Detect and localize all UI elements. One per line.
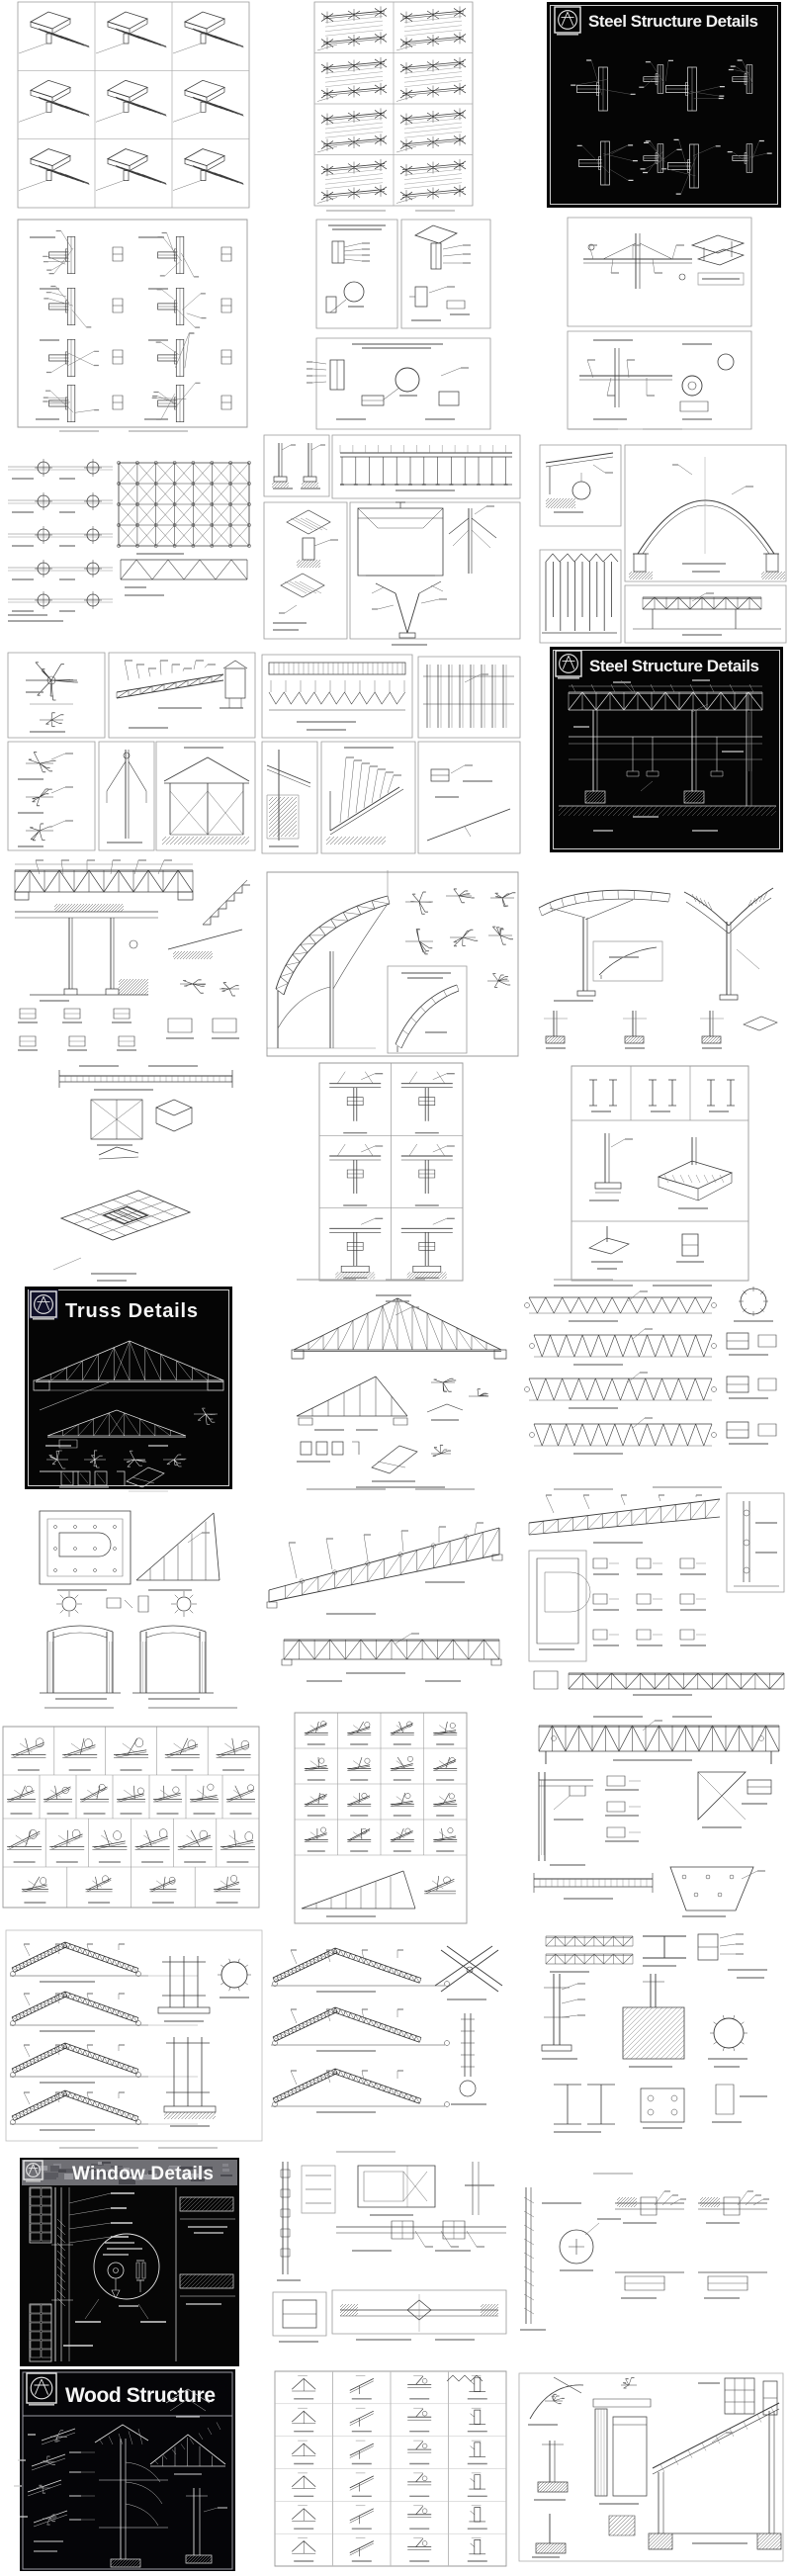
svg-text:Wood Structure: Wood Structure xyxy=(65,2384,216,2407)
svg-text:Steel Structure Details: Steel Structure Details xyxy=(588,12,758,31)
svg-text:Truss Details: Truss Details xyxy=(65,1300,198,1322)
svg-text:Window Details: Window Details xyxy=(72,2164,214,2184)
svg-text:Steel Structure Details: Steel Structure Details xyxy=(589,657,759,675)
